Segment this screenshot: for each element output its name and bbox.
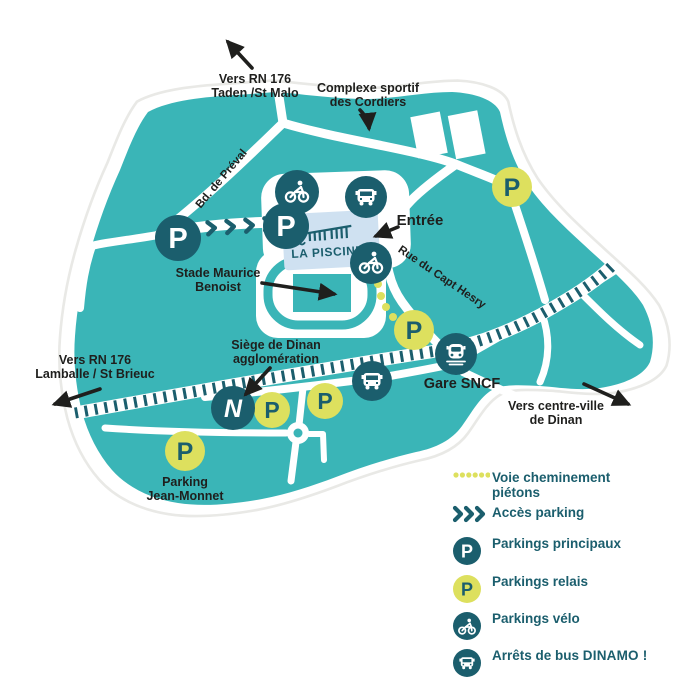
bike-parking-marker — [275, 170, 319, 214]
legend-label: Voie cheminement piétons — [492, 470, 610, 500]
roundabout — [287, 422, 309, 444]
legend-label: Parkings principaux — [492, 536, 621, 551]
legend-label: Accès parking — [492, 505, 584, 520]
train-icon — [447, 344, 466, 365]
parking-relais-marker-jean-monnet: P — [165, 431, 205, 471]
label-parking-jm-1: Parking — [162, 475, 208, 489]
svg-text:P: P — [461, 542, 473, 562]
legend-item-parkings-principaux: P Parkings principaux — [452, 536, 621, 551]
parking-relais-marker: P — [394, 310, 434, 350]
legend-item-parkings-relais: P Parkings relais — [452, 574, 588, 589]
road-roundabout-south — [291, 442, 296, 481]
label-centre-ville-1: Vers centre-ville — [508, 399, 604, 413]
label-gare-sncf: Gare SNCF — [424, 376, 501, 392]
label-stade-2: Benoist — [195, 280, 242, 294]
label-centre-ville-2: de Dinan — [530, 413, 583, 427]
train-station-marker — [435, 333, 477, 375]
label-parking-jm-2: Jean-Monnet — [146, 489, 224, 503]
bus-stop-marker — [352, 361, 392, 401]
label-lamballe-2: Lamballe / St Brieuc — [35, 367, 155, 381]
parking-relais-marker: P — [492, 167, 532, 207]
legend-label: Parkings vélo — [492, 611, 580, 626]
access-map: LA PISCINE P P P P P P P — [0, 0, 700, 700]
svg-text:P: P — [461, 580, 473, 600]
p-letter: P — [317, 388, 332, 414]
bike-parking-marker — [350, 242, 392, 284]
legend-item-pedestrian-path: Voie cheminement piétons — [452, 470, 610, 500]
parking-relais-marker: P — [254, 392, 290, 428]
label-entree: Entrée — [397, 212, 444, 229]
label-complexe-2: des Cordiers — [330, 95, 406, 109]
label-lamballe-1: Vers RN 176 — [59, 353, 131, 367]
legend-label: Arrêts de bus DINAMO ! — [492, 648, 647, 663]
label-stade-1: Stade Maurice — [176, 266, 261, 280]
label-siege-2: agglomération — [233, 352, 319, 366]
legend-item-parkings-velo: Parkings vélo — [452, 611, 580, 626]
p-letter: P — [276, 211, 295, 243]
p-letter: P — [168, 223, 187, 255]
p-letter: P — [177, 438, 194, 466]
label-taden-1: Vers RN 176 — [219, 72, 291, 86]
arrow-taden — [228, 42, 252, 68]
parking-relais-marker: P — [307, 383, 343, 419]
label-complexe-1: Complexe sportif — [317, 81, 420, 95]
road-roundabout-north — [299, 388, 303, 425]
dinamo-brand: DINAMO ! — [583, 648, 648, 663]
legend-item-access-parking: Accès parking — [452, 505, 584, 520]
label-siege-1: Siège de Dinan — [231, 338, 321, 352]
p-letter: P — [264, 397, 279, 423]
legend-item-arrets-bus: Arrêts de bus DINAMO ! — [452, 648, 647, 663]
legend-label: Parkings relais — [492, 574, 588, 589]
map-canvas: LA PISCINE P P P P P P P — [0, 0, 700, 700]
p-letter: P — [504, 174, 521, 202]
label-taden-2: Taden /St Malo — [211, 86, 299, 100]
parking-principal-marker: P — [155, 215, 201, 261]
p-letter: P — [406, 317, 423, 345]
bus-stop-marker — [345, 176, 387, 218]
dinan-agglo-logo: N — [224, 395, 243, 423]
